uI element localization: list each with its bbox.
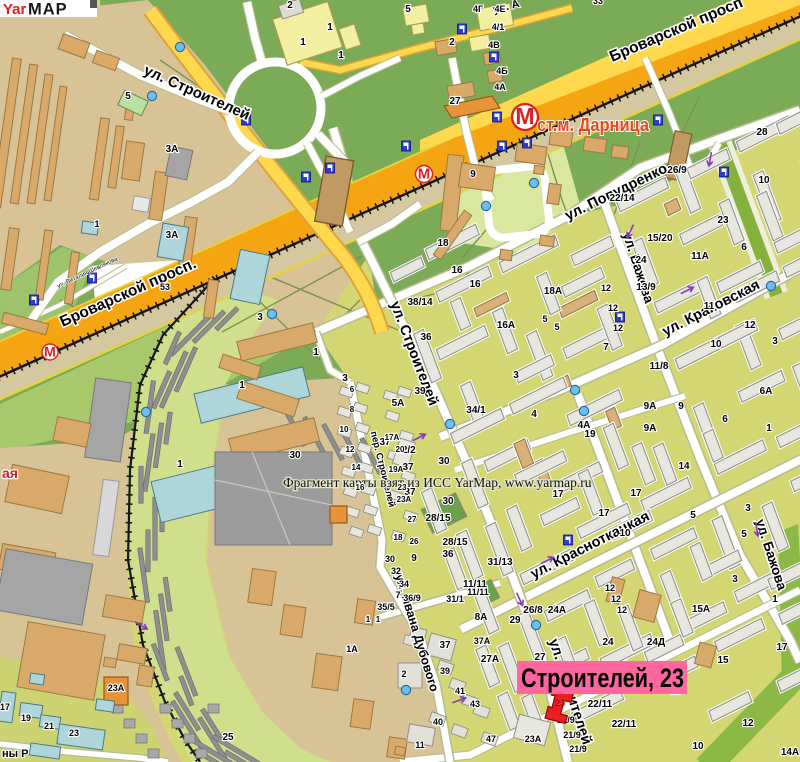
- svg-text:23: 23: [555, 698, 565, 708]
- svg-text:4Г: 4Г: [473, 4, 483, 14]
- svg-text:16A: 16A: [497, 320, 515, 331]
- svg-text:28/15: 28/15: [442, 537, 467, 548]
- svg-text:20: 20: [396, 445, 405, 454]
- svg-text:8A: 8A: [475, 612, 488, 623]
- svg-text:12: 12: [601, 283, 611, 293]
- svg-text:36: 36: [420, 332, 432, 343]
- svg-text:33: 33: [593, 0, 603, 6]
- svg-text:17А: 17А: [385, 433, 400, 442]
- svg-text:17: 17: [630, 488, 642, 499]
- svg-text:28/15: 28/15: [425, 513, 450, 524]
- svg-text:1: 1: [239, 380, 245, 391]
- svg-text:5: 5: [542, 314, 547, 324]
- svg-text:16: 16: [356, 483, 365, 492]
- svg-text:17: 17: [776, 642, 788, 653]
- svg-text:32: 32: [391, 566, 401, 576]
- svg-text:6: 6: [722, 414, 728, 425]
- svg-text:36: 36: [442, 549, 454, 560]
- svg-text:30: 30: [289, 450, 301, 461]
- svg-text:МАР: МАР: [28, 1, 68, 19]
- svg-text:5: 5: [125, 91, 131, 102]
- svg-text:30: 30: [438, 456, 450, 467]
- svg-text:30: 30: [442, 496, 454, 507]
- svg-text:34: 34: [399, 579, 409, 589]
- svg-text:ны Р: ны Р: [2, 748, 28, 760]
- svg-text:7: 7: [603, 342, 609, 353]
- svg-text:12: 12: [613, 323, 623, 333]
- svg-text:14: 14: [678, 461, 690, 472]
- svg-text:15A: 15A: [692, 604, 710, 615]
- svg-text:12: 12: [605, 583, 615, 593]
- svg-text:3: 3: [772, 336, 778, 347]
- svg-text:2: 2: [401, 669, 406, 679]
- svg-text:3А: 3А: [166, 144, 179, 155]
- svg-text:12: 12: [346, 445, 355, 454]
- svg-text:22/14: 22/14: [609, 193, 634, 204]
- svg-text:39: 39: [440, 666, 450, 676]
- svg-text:3А: 3А: [166, 230, 179, 241]
- svg-text:24: 24: [635, 255, 647, 266]
- svg-text:1: 1: [366, 615, 371, 624]
- svg-text:37: 37: [439, 640, 451, 651]
- svg-text:5: 5: [554, 322, 559, 332]
- svg-text:29: 29: [509, 615, 521, 626]
- svg-text:17: 17: [0, 702, 10, 712]
- svg-text:11A: 11A: [691, 251, 709, 262]
- svg-text:23: 23: [717, 215, 729, 226]
- svg-text:38/14: 38/14: [407, 297, 432, 308]
- svg-text:1: 1: [338, 50, 344, 61]
- svg-text:9: 9: [411, 553, 417, 564]
- svg-text:10: 10: [692, 741, 704, 752]
- svg-text:26: 26: [410, 537, 419, 546]
- svg-text:М: М: [44, 343, 56, 359]
- svg-text:12: 12: [744, 320, 756, 331]
- svg-text:15/20: 15/20: [647, 233, 672, 244]
- svg-text:4/1: 4/1: [492, 22, 505, 32]
- svg-text:2: 2: [449, 37, 455, 48]
- svg-text:4Б: 4Б: [496, 66, 508, 76]
- svg-text:1: 1: [327, 22, 333, 33]
- svg-text:11/11: 11/11: [467, 587, 489, 597]
- svg-text:27: 27: [408, 515, 417, 524]
- svg-text:10: 10: [710, 339, 722, 350]
- svg-text:12: 12: [617, 605, 627, 615]
- svg-text:34/1: 34/1: [466, 405, 486, 416]
- svg-text:17: 17: [552, 489, 564, 500]
- svg-text:9: 9: [678, 401, 684, 412]
- svg-text:28: 28: [756, 127, 768, 138]
- svg-text:14А: 14А: [781, 747, 799, 758]
- svg-text:27A: 27A: [481, 654, 499, 665]
- svg-text:18A: 18A: [544, 286, 562, 297]
- svg-text:37: 37: [402, 462, 414, 473]
- svg-text:36/9: 36/9: [403, 593, 421, 603]
- svg-text:21/9: 21/9: [569, 744, 587, 754]
- svg-text:1: 1: [94, 219, 99, 229]
- svg-text:23: 23: [69, 728, 79, 738]
- svg-text:2: 2: [287, 0, 293, 11]
- svg-text:30: 30: [385, 554, 395, 564]
- svg-text:16: 16: [451, 265, 463, 276]
- svg-text:3: 3: [745, 503, 751, 514]
- svg-text:11/8: 11/8: [650, 361, 669, 372]
- svg-text:6: 6: [741, 242, 747, 253]
- svg-text:40: 40: [433, 717, 443, 727]
- svg-text:31/1: 31/1: [446, 594, 464, 604]
- svg-text:1А: 1А: [346, 644, 358, 654]
- svg-text:23А: 23А: [397, 495, 412, 504]
- svg-text:19: 19: [584, 429, 596, 440]
- svg-text:5: 5: [405, 4, 411, 15]
- svg-text:41: 41: [455, 686, 465, 696]
- svg-text:12: 12: [611, 594, 621, 604]
- svg-text:12: 12: [608, 303, 618, 313]
- svg-text:37А: 37А: [474, 636, 491, 646]
- svg-text:24A: 24A: [548, 605, 566, 616]
- svg-text:5: 5: [741, 529, 747, 540]
- svg-text:24: 24: [602, 637, 614, 648]
- svg-text:3: 3: [513, 370, 519, 381]
- svg-text:8: 8: [350, 405, 355, 414]
- svg-text:19А: 19А: [389, 465, 404, 474]
- svg-text:25: 25: [222, 732, 234, 743]
- svg-text:ая: ая: [2, 465, 18, 481]
- svg-text:1: 1: [177, 459, 183, 470]
- svg-text:Строителей, 23: Строителей, 23: [521, 663, 684, 693]
- svg-text:1: 1: [376, 615, 381, 624]
- svg-text:23: 23: [398, 483, 407, 492]
- svg-text:27: 27: [449, 96, 461, 107]
- svg-text:10: 10: [758, 175, 770, 186]
- svg-text:23А: 23А: [525, 734, 542, 744]
- svg-text:14: 14: [352, 463, 361, 472]
- svg-text:26/8: 26/8: [523, 605, 543, 616]
- svg-text:39: 39: [414, 386, 426, 397]
- svg-text:М: М: [418, 166, 431, 183]
- svg-text:1: 1: [313, 347, 319, 358]
- svg-text:24Д: 24Д: [647, 637, 665, 648]
- svg-text:43: 43: [470, 699, 480, 709]
- svg-text:53: 53: [160, 282, 170, 292]
- svg-text:12: 12: [742, 718, 754, 729]
- svg-text:Yar: Yar: [3, 1, 27, 18]
- svg-text:19: 19: [21, 713, 31, 723]
- svg-text:6: 6: [350, 385, 355, 394]
- svg-text:7: 7: [395, 590, 400, 600]
- svg-text:1: 1: [772, 594, 778, 605]
- svg-text:22/11: 22/11: [612, 719, 637, 730]
- svg-text:9A: 9A: [644, 423, 657, 434]
- svg-text:4В: 4В: [488, 40, 500, 50]
- svg-text:М: М: [515, 103, 534, 129]
- svg-text:22/11: 22/11: [588, 699, 613, 710]
- svg-text:3: 3: [732, 574, 738, 585]
- svg-text:5: 5: [690, 510, 696, 521]
- svg-text:10: 10: [619, 528, 631, 539]
- svg-text:5А: 5А: [392, 398, 405, 409]
- svg-text:9A: 9A: [644, 401, 657, 412]
- svg-text:1: 1: [766, 423, 772, 434]
- svg-text:4: 4: [531, 409, 537, 420]
- svg-text:11: 11: [415, 740, 425, 750]
- svg-text:4А: 4А: [494, 82, 506, 92]
- svg-text:13/9: 13/9: [636, 282, 656, 293]
- svg-text:16: 16: [469, 279, 481, 290]
- svg-text:18: 18: [437, 238, 449, 249]
- svg-text:15: 15: [717, 655, 729, 666]
- svg-text:1: 1: [300, 37, 306, 48]
- svg-text:3: 3: [342, 373, 348, 384]
- svg-text:21/9: 21/9: [563, 730, 581, 740]
- svg-text:10: 10: [340, 425, 349, 434]
- svg-text:11: 11: [704, 301, 715, 312]
- svg-text:Фрагмент карты взят из ИСС Yar: Фрагмент карты взят из ИСС YarMap, www.y…: [283, 475, 592, 490]
- svg-text:6A: 6A: [760, 386, 773, 397]
- svg-text:47: 47: [486, 734, 496, 744]
- svg-text:17: 17: [598, 508, 610, 519]
- svg-text:9: 9: [470, 169, 476, 180]
- svg-text:ст.м. Дарница: ст.м. Дарница: [537, 115, 650, 135]
- svg-text:23А: 23А: [108, 683, 125, 693]
- svg-text:3: 3: [257, 312, 263, 323]
- svg-text:21: 21: [44, 721, 54, 731]
- svg-text:18: 18: [394, 533, 403, 542]
- svg-text:35/5: 35/5: [377, 602, 395, 612]
- svg-text:4Е: 4Е: [494, 4, 505, 14]
- svg-text:31/13: 31/13: [487, 557, 512, 568]
- svg-text:26/9: 26/9: [667, 165, 687, 176]
